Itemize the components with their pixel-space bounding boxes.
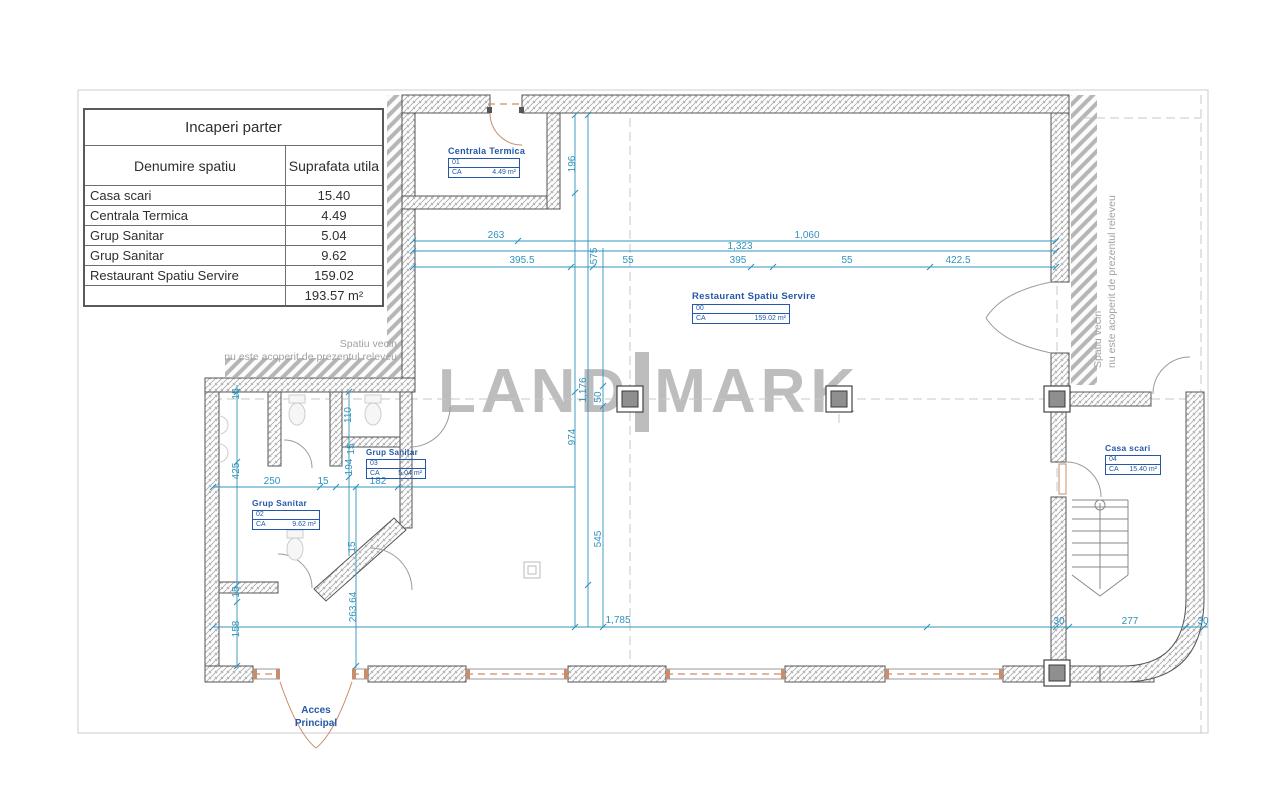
room-area: 4.49 m² bbox=[492, 168, 516, 177]
sink-fixture bbox=[219, 444, 228, 462]
dim-label: 30 bbox=[1053, 616, 1065, 627]
neighbour-note-right-line2: nu este acoperit de prezentul releveu bbox=[1106, 195, 1118, 368]
dim-label: 158 bbox=[231, 620, 242, 637]
door-jamb bbox=[487, 107, 492, 113]
room-number: 04 bbox=[1106, 456, 1160, 465]
floor-plan-sheet: LAND MARK bbox=[0, 0, 1280, 791]
floor-drain bbox=[528, 566, 536, 574]
table-row: Centrala Termica 4.49 bbox=[84, 206, 383, 226]
room-area: 9.62 m² bbox=[292, 520, 316, 529]
restaurant-double-door-arc-top bbox=[986, 282, 1051, 318]
centrala-door-arc bbox=[490, 113, 522, 145]
dim-label: 1,176 bbox=[578, 377, 589, 402]
dim-label: 263 bbox=[488, 230, 505, 241]
table-total-row: 193.57 m² bbox=[84, 286, 383, 307]
dim-label: 395 bbox=[730, 255, 747, 266]
dim-label: 425 bbox=[231, 462, 242, 479]
dim-label: 395.5 bbox=[509, 255, 534, 266]
toilet-fixture bbox=[365, 395, 381, 403]
dim-label: 15 bbox=[231, 388, 242, 400]
dim-label: 1,060 bbox=[794, 230, 819, 241]
table-row: Grup Sanitar 9.62 bbox=[84, 246, 383, 266]
dim-label: 250 bbox=[264, 476, 281, 487]
room-number: 02 bbox=[253, 511, 319, 520]
main-entrance-label: Acces Principal bbox=[276, 704, 356, 730]
dim-label: 196 bbox=[567, 155, 578, 172]
column bbox=[1044, 660, 1070, 686]
dim-label: 263.64 bbox=[348, 591, 359, 622]
stairwell-door-arc bbox=[1066, 462, 1101, 497]
toilet-fixture bbox=[365, 403, 381, 425]
room-label-centrala-termica: Centrala Termica 01 CA4.49 m² bbox=[448, 146, 525, 178]
column bbox=[1044, 386, 1070, 412]
dim-label: 575 bbox=[589, 247, 600, 264]
toilet-fixture bbox=[287, 538, 303, 560]
dim-label: 422.5 bbox=[945, 255, 970, 266]
table-row: Restaurant Spatiu Servire 159.02 bbox=[84, 266, 383, 286]
dim-label: 1,785 bbox=[605, 615, 630, 626]
toilet-stall-door-arc bbox=[284, 440, 312, 468]
column-header-area: Suprafata utila bbox=[285, 146, 383, 186]
table-row: Casa scari 15.40 bbox=[84, 186, 383, 206]
neighbour-note-left-line1: Spatiu vecin bbox=[340, 338, 397, 350]
dim-label: 15 bbox=[231, 586, 242, 598]
dim-label: 1,323 bbox=[727, 241, 752, 252]
toilet-fixture bbox=[289, 403, 305, 425]
column-header-name: Denumire spatiu bbox=[84, 146, 285, 186]
dim-label: 30 bbox=[1197, 616, 1209, 627]
dim-label: 55 bbox=[841, 255, 853, 266]
floor-drain bbox=[524, 562, 540, 578]
staircase bbox=[1072, 500, 1128, 596]
dim-label: 194 bbox=[344, 458, 355, 475]
room-number: 01 bbox=[449, 159, 519, 168]
dim-label: 15 bbox=[317, 476, 329, 487]
room-label-grup-sanitar-03: Grup Sanitar 03 CA5.04 m² bbox=[366, 448, 426, 479]
door-jamb bbox=[519, 107, 524, 113]
restaurant-double-door-arc-bottom bbox=[986, 318, 1051, 353]
room-area: 159.02 m² bbox=[754, 314, 786, 323]
top-right-door-arc bbox=[1153, 357, 1190, 394]
room-number: 03 bbox=[367, 460, 425, 469]
toilet-fixture bbox=[287, 530, 303, 538]
dim-label: 545 bbox=[593, 530, 604, 547]
neighbour-note-right-line1: Spatiu vecin bbox=[1092, 311, 1104, 368]
sink-fixture bbox=[219, 416, 228, 434]
column bbox=[617, 386, 643, 412]
room-area: 5.04 m² bbox=[398, 469, 422, 478]
columns bbox=[617, 386, 1070, 686]
dim-label: 974 bbox=[567, 428, 578, 445]
neighbour-note-left-line2: nu este acoperit de prezentul releveu bbox=[224, 351, 397, 363]
room-label-grup-sanitar-02: Grup Sanitar 02 CA9.62 m² bbox=[252, 498, 320, 530]
stairwell-door-leaf bbox=[1059, 464, 1066, 494]
total-area: 193.57 m² bbox=[285, 286, 383, 307]
dim-label: 110 bbox=[343, 407, 354, 423]
dim-label: 15 bbox=[347, 541, 358, 553]
table-title: Incaperi parter bbox=[84, 109, 383, 146]
dim-label: 50 bbox=[593, 391, 604, 403]
room-number: 00 bbox=[693, 305, 789, 314]
column bbox=[826, 386, 852, 412]
toilet-fixture bbox=[289, 395, 305, 403]
room-area: 15.40 m² bbox=[1129, 465, 1157, 474]
room-legend-table: Incaperi parter Denumire spatiu Suprafat… bbox=[83, 108, 384, 307]
room-label-casa-scari: Casa scari 04 CA15.40 m² bbox=[1105, 443, 1161, 475]
room-label-restaurant: Restaurant Spatiu Servire 00 CA159.02 m² bbox=[692, 291, 816, 324]
gs03-door-arc bbox=[410, 407, 450, 447]
dim-label: 15 bbox=[346, 443, 357, 455]
dim-label: 277 bbox=[1122, 616, 1139, 627]
table-row: Grup Sanitar 5.04 bbox=[84, 226, 383, 246]
dim-label: 55 bbox=[622, 255, 634, 266]
